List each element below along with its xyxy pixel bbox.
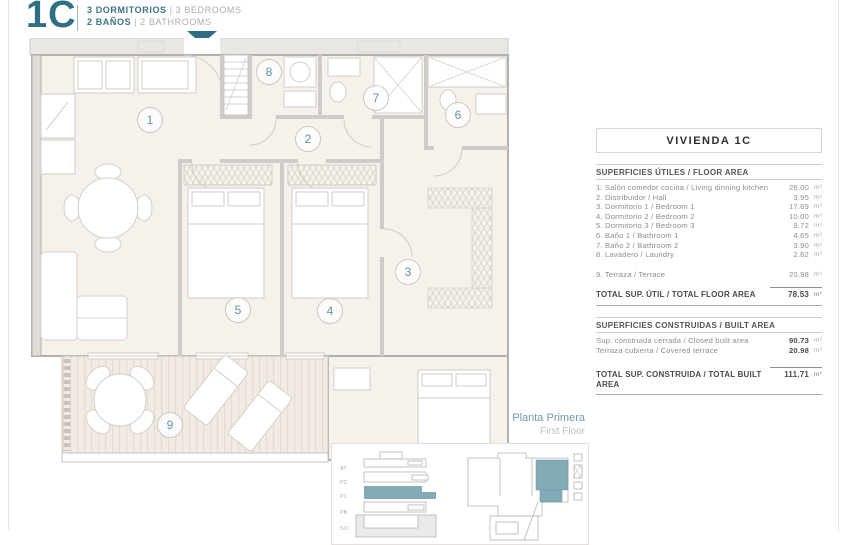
floor-tag-p2: P2 xyxy=(340,480,347,486)
floor-name-es: Planta Primera xyxy=(455,412,585,425)
page-edge-left xyxy=(8,0,9,530)
room-number-bedroom3: 5 xyxy=(225,297,251,323)
bathrooms-line: 2 BAÑOS|2 BATHROOMS xyxy=(87,16,242,28)
table-row: 1. Salón comedor cocina / Living dinning… xyxy=(596,183,822,193)
divider xyxy=(596,305,822,306)
total-floor-area-row: TOTAL SUP. ÚTIL / TOTAL FLOOR AREA78.53m… xyxy=(596,287,822,300)
area-table: VIVIENDA 1C SUPERFICIES ÚTILES / FLOOR A… xyxy=(596,128,822,395)
bed xyxy=(288,165,376,298)
total-built-area-row: TOTAL SUP. CONSTRUIDA / TOTAL BUILT AREA… xyxy=(596,367,822,389)
floor-tag-pb: PB xyxy=(340,510,348,516)
bedrooms-line: 3 DORMITORIOS|3 BEDROOMS xyxy=(87,4,242,16)
room-number-terrace: 9 xyxy=(157,412,183,438)
pipe: | xyxy=(170,5,173,15)
room-number-bath2: 7 xyxy=(363,85,389,111)
laundry-fixtures xyxy=(284,57,316,107)
exterior-wall xyxy=(32,55,41,356)
table-row: Terraza cubierta / Covered terrace20.98m… xyxy=(596,346,822,356)
floor-area-rows: 1. Salón comedor cocina / Living dinning… xyxy=(596,183,822,260)
floor-tag-p1: P1 xyxy=(340,494,347,500)
highlighted-floor xyxy=(364,486,422,499)
kitchen-sink xyxy=(41,94,75,138)
building-section-diagram: AT P2 P1 PB SO xyxy=(336,448,456,542)
room-number-bath1: 6 xyxy=(445,102,471,128)
divider xyxy=(596,394,822,395)
wardrobe xyxy=(184,165,272,185)
floor-area-heading: SUPERFICIES ÚTILES / FLOOR AREA xyxy=(596,164,822,180)
unit-code: 1C xyxy=(26,0,77,37)
brochure-page: { "header": { "code": "1C", "separator":… xyxy=(0,0,850,530)
table-row: 5. Dormitorio 3 / Bedroom 39.72m² xyxy=(596,221,822,231)
pipe: | xyxy=(134,17,137,27)
unit-specs: 3 DORMITORIOS|3 BEDROOMS 2 BAÑOS|2 BATHR… xyxy=(87,4,242,28)
table-row: 6. Baño 1 / Bathroom 14.65m² xyxy=(596,231,822,241)
stair-shaft xyxy=(224,55,248,115)
common-corridor xyxy=(30,38,508,55)
floor-tag-so: SO xyxy=(340,526,349,532)
floor-tag-at: AT xyxy=(340,466,347,472)
room-number-bedroom2: 4 xyxy=(317,298,343,324)
floor-name: Planta Primera First Floor xyxy=(455,412,585,438)
unit-title: VIVIENDA 1C xyxy=(596,128,822,153)
table-row: Sup. construida cerrada / Closed built a… xyxy=(596,336,822,346)
room-number-hall: 2 xyxy=(295,126,321,152)
header-divider xyxy=(77,5,78,31)
room-number-bedroom1: 3 xyxy=(395,259,421,285)
table-row: 7. Baño 2 / Bathroom 23.90m² xyxy=(596,241,822,251)
bedrooms-en: 3 BEDROOMS xyxy=(176,5,242,15)
room-number-laundry: 8 xyxy=(256,59,282,85)
room-number-living: 1 xyxy=(137,107,163,133)
wardrobe xyxy=(288,165,376,185)
highlighted-unit xyxy=(536,460,568,490)
built-area-heading: SUPERFICIES CONSTRUIDAS / BUILT AREA xyxy=(596,317,822,333)
page-edge-right xyxy=(838,0,839,530)
bathrooms-es: 2 BAÑOS xyxy=(87,17,131,27)
bathrooms-en: 2 BATHROOMS xyxy=(140,17,211,27)
site-plan-diagram xyxy=(460,446,584,542)
bedrooms-es: 3 DORMITORIOS xyxy=(87,5,167,15)
bed xyxy=(184,165,272,298)
table-row: 4. Dormitorio 2 / Bedroom 210.00m² xyxy=(596,212,822,222)
table-row: 3. Dormitorio 1 / Bedroom 117.69m² xyxy=(596,202,822,212)
table-row: 2. Distribuidor / Hall3.95m² xyxy=(596,193,822,203)
floor-name-en: First Floor xyxy=(455,425,585,438)
terrace-windows xyxy=(88,353,324,359)
terrace-row: 9. Terraza / Terrace20.98m² xyxy=(596,270,822,280)
table-row: 8. Lavadero / Laundry2.62m² xyxy=(596,250,822,260)
floor-plan xyxy=(28,38,512,466)
built-area-rows: Sup. construida cerrada / Closed built a… xyxy=(596,336,822,355)
